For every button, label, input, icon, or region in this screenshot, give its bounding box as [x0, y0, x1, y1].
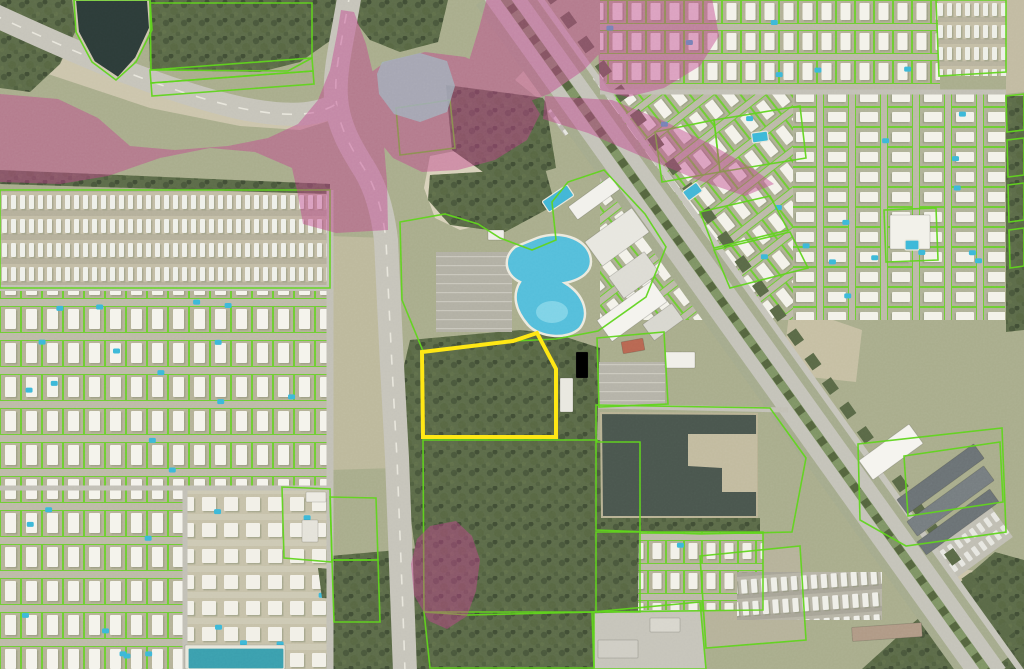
aerial-map-viewport[interactable]	[0, 0, 1024, 669]
photo-grain	[0, 0, 1024, 669]
aerial-parcel-map[interactable]	[0, 0, 1024, 669]
grain	[0, 0, 1024, 669]
